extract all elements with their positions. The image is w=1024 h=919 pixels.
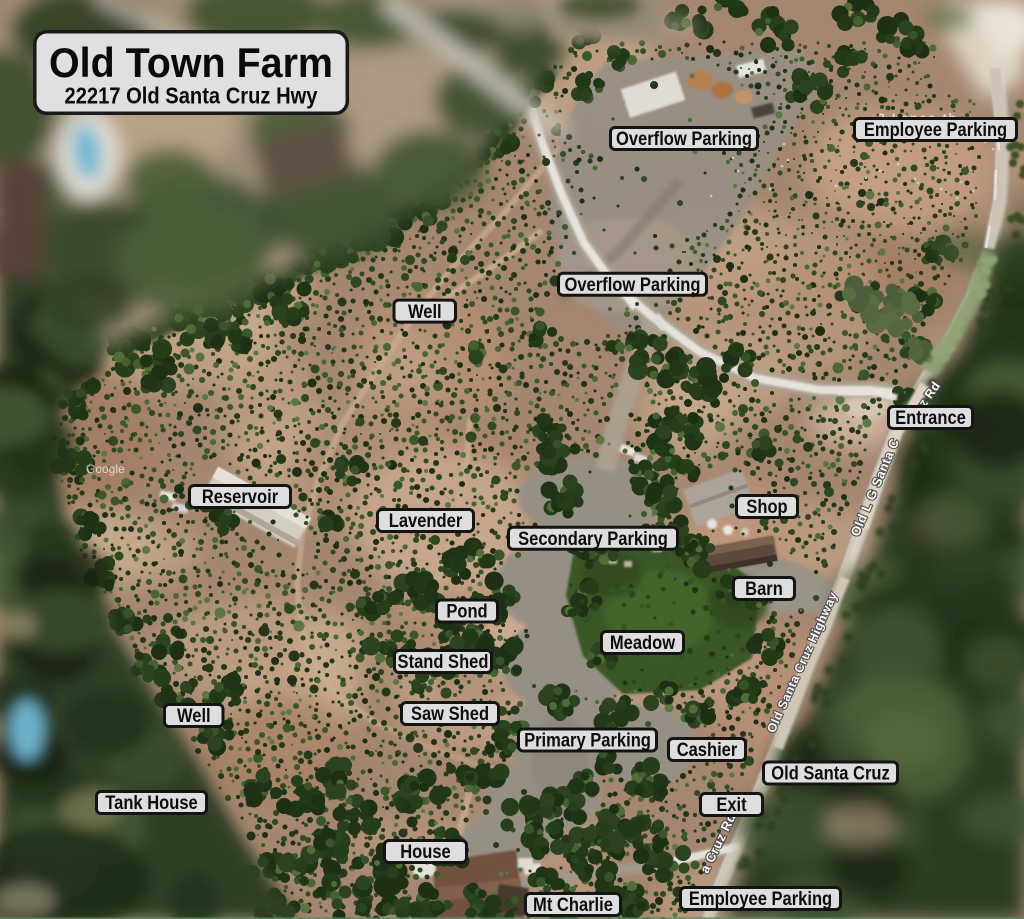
svg-text:Entrance: Entrance bbox=[895, 408, 966, 429]
svg-text:Tank House: Tank House bbox=[105, 793, 198, 814]
svg-text:Shop: Shop bbox=[746, 497, 787, 518]
svg-text:Well: Well bbox=[408, 302, 442, 323]
svg-text:Old Town Farm: Old Town Farm bbox=[49, 39, 333, 86]
svg-text:22217 Old Santa Cruz Hwy: 22217 Old Santa Cruz Hwy bbox=[65, 83, 318, 109]
svg-text:Secondary Parking: Secondary Parking bbox=[518, 529, 668, 550]
svg-text:Employee Parking: Employee Parking bbox=[864, 120, 1007, 141]
svg-text:Meadow: Meadow bbox=[610, 633, 675, 654]
svg-text:Barn: Barn bbox=[745, 579, 783, 600]
svg-text:Reservoir: Reservoir bbox=[202, 487, 279, 508]
svg-text:Exit: Exit bbox=[716, 795, 747, 816]
svg-text:Overflow Parking: Overflow Parking bbox=[616, 129, 752, 150]
svg-text:Primary Parking: Primary Parking bbox=[524, 731, 651, 752]
svg-text:Old Santa Cruz: Old Santa Cruz bbox=[771, 764, 890, 785]
svg-text:Well: Well bbox=[177, 706, 211, 727]
svg-text:Employee Parking: Employee Parking bbox=[689, 889, 832, 910]
svg-text:Cashier: Cashier bbox=[677, 740, 738, 761]
svg-text:Mt Charlie: Mt Charlie bbox=[533, 895, 613, 916]
svg-text:Saw Shed: Saw Shed bbox=[411, 704, 489, 725]
svg-text:Pond: Pond bbox=[446, 602, 487, 623]
svg-text:Lavender: Lavender bbox=[389, 511, 463, 532]
svg-text:Google: Google bbox=[86, 462, 125, 476]
svg-text:Stand Shed: Stand Shed bbox=[398, 652, 489, 673]
svg-text:House: House bbox=[400, 842, 451, 863]
svg-text:Overflow Parking: Overflow Parking bbox=[565, 275, 701, 296]
